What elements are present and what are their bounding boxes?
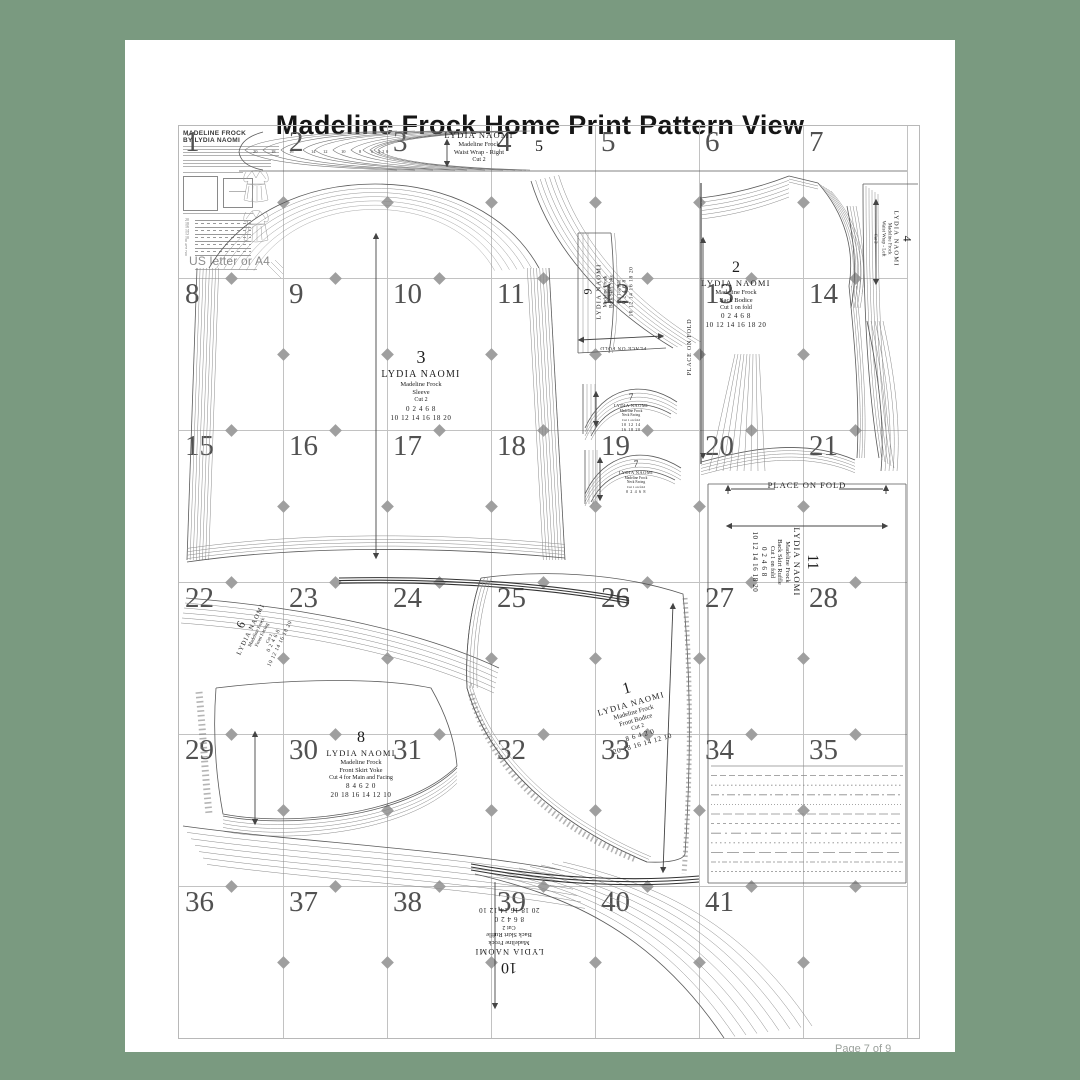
piece-label-back-skirt-ruffle-fold: 11 LYDIA NAOMI Madeline Frock Back Skirt… (750, 502, 822, 622)
pattern-view-card: Madeline Frock Home Print Pattern View M… (125, 40, 955, 1052)
pattern-sheet: MADELINE FROCK BY LYDIA NAOMI 2018161412… (178, 125, 920, 1039)
place-on-fold-label-bodice: PLACE ON FOLD (687, 306, 693, 388)
size-run-number: 12 (323, 149, 328, 154)
page: { "page": { "title": "Madeline Frock Hom… (0, 0, 1080, 1080)
place-on-fold-label-yoke: PLACE ON FOLD (587, 345, 659, 350)
piece-label-neck-facing-b: 7 LYDIA NAOMI Madeline Frock Neck Facing… (596, 459, 676, 494)
piece-label-waist-wrap-left: 4 LYDIA NAOMI Madeline Frock Waist Wrap … (873, 184, 914, 294)
size-run-number: 20 (253, 149, 258, 154)
page-footer: Page 7 of 9 (835, 1043, 891, 1052)
piece-label-back-skirt-ruffle: 10 LYDIA NAOMI Madeline Frock Back Skirt… (449, 905, 569, 977)
size-run-number: 8 (359, 149, 362, 154)
piece-label-front-skirt-yoke: 8 LYDIA NAOMI Madeline Frock Front Skirt… (296, 728, 426, 800)
size-run-number: 6 (371, 149, 374, 154)
size-run-number: 18 (271, 149, 276, 154)
piece-label-waist-wrap-right: LYDIA NAOMI Madeline Frock Waist Wrap - … (431, 130, 543, 164)
piece-label-neck-facing-a: 7 LYDIA NAOMI Madeline Frock Neck Facing… (591, 392, 671, 433)
size-run-number: 10 (341, 149, 346, 154)
piece-label-back-bodice: 2 LYDIA NAOMI Madeline Frock Back Bodice… (676, 258, 796, 330)
size-run-number: 16 (289, 149, 294, 154)
place-on-fold-label-ruffle: PLACE ON FOLD (756, 480, 858, 490)
piece-label-back-skirt-yoke: 9 LYDIA NAOMI Madeline Frock Back Skirt … (581, 237, 636, 347)
size-run-number: 0 (386, 149, 389, 154)
piece-label-sleeve: 3 LYDIA NAOMI Madeline Frock Sleeve Cut … (361, 346, 481, 422)
